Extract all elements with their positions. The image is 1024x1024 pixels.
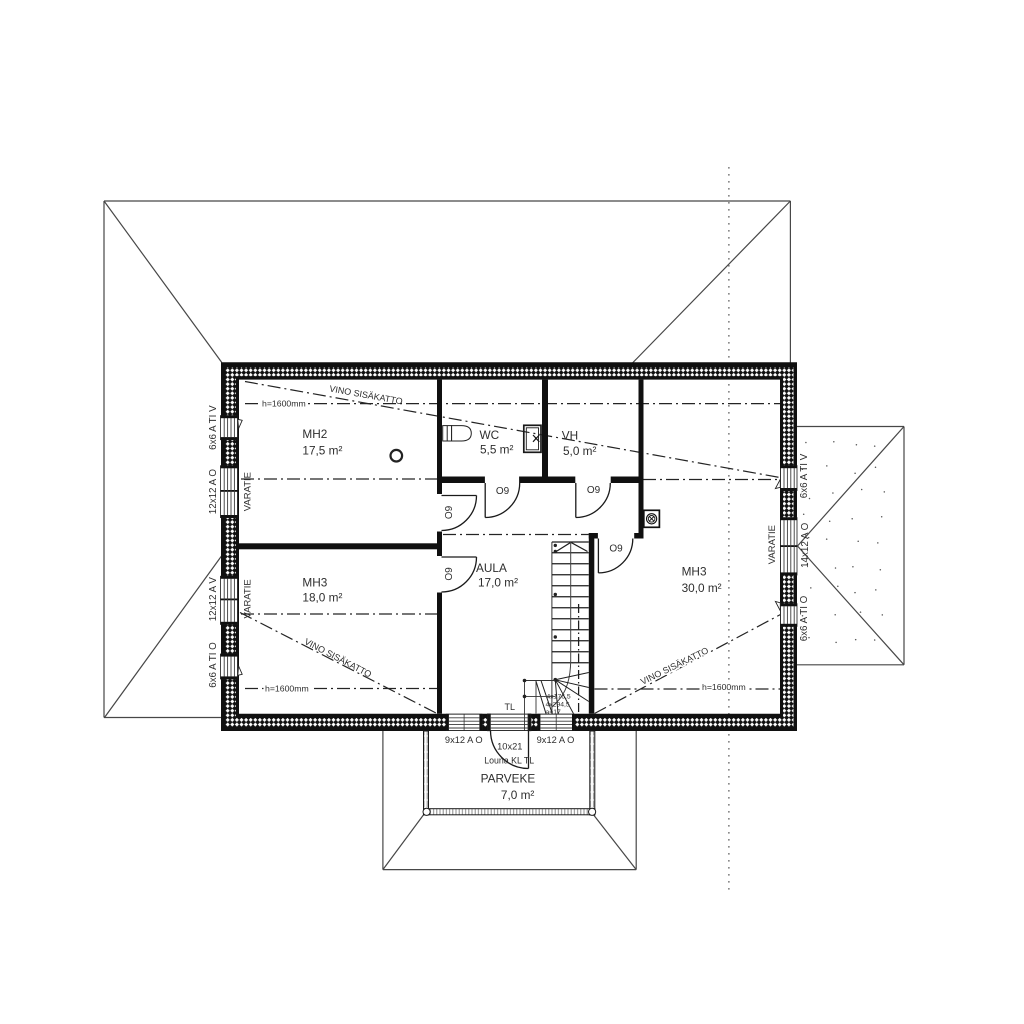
svg-text:9x12 A O: 9x12 A O <box>445 735 483 745</box>
svg-text:18,0 m²: 18,0 m² <box>302 591 342 605</box>
svg-text:10x21: 10x21 <box>497 741 522 751</box>
svg-text:17,0 m²: 17,0 m² <box>478 576 518 590</box>
svg-text:9x12 A O: 9x12 A O <box>537 735 575 745</box>
svg-text:6x6 A TI V: 6x6 A TI V <box>208 405 219 450</box>
svg-text:VARATIE: VARATIE <box>242 579 253 618</box>
svg-text:O9: O9 <box>444 505 455 519</box>
svg-text:WC: WC <box>480 428 500 442</box>
svg-text:Louna KL TL: Louna KL TL <box>484 755 534 765</box>
svg-text:30,0 m²: 30,0 m² <box>682 581 722 595</box>
svg-text:a=17: a=17 <box>546 709 562 716</box>
svg-text:4x294,5: 4x294,5 <box>546 702 570 709</box>
svg-text:O9: O9 <box>587 485 601 496</box>
svg-text:VARATIE: VARATIE <box>242 472 253 511</box>
svg-text:6x6 A TI O: 6x6 A TI O <box>208 642 219 688</box>
svg-text:14x12 A O: 14x12 A O <box>800 522 811 568</box>
svg-text:MH2: MH2 <box>302 427 327 441</box>
svg-text:O9: O9 <box>496 486 510 497</box>
svg-text:TL: TL <box>505 702 516 712</box>
svg-text:5,0 m²: 5,0 m² <box>563 444 597 458</box>
svg-text:4x176,5: 4x176,5 <box>547 694 571 701</box>
svg-text:h=1600mm: h=1600mm <box>262 398 306 408</box>
svg-text:O9: O9 <box>609 543 623 554</box>
svg-text:12x12 A V: 12x12 A V <box>208 577 219 622</box>
svg-text:6x6 A TI O: 6x6 A TI O <box>799 595 810 641</box>
svg-text:7,0 m²: 7,0 m² <box>501 788 535 802</box>
svg-text:h=1600mm: h=1600mm <box>702 682 746 692</box>
svg-text:12x12 A O: 12x12 A O <box>208 469 219 515</box>
svg-text:5,5 m²: 5,5 m² <box>480 443 514 457</box>
svg-text:VARATIE: VARATIE <box>767 525 778 564</box>
svg-text:AULA: AULA <box>476 561 507 575</box>
svg-text:h=1600mm: h=1600mm <box>265 683 309 693</box>
svg-text:PARVEKE: PARVEKE <box>481 771 536 785</box>
svg-text:MH3: MH3 <box>682 564 707 578</box>
svg-text:VH: VH <box>562 428 578 442</box>
svg-text:MH3: MH3 <box>302 575 327 589</box>
svg-text:6x6 A TI V: 6x6 A TI V <box>799 453 810 498</box>
svg-text:17,5 m²: 17,5 m² <box>302 443 342 457</box>
svg-text:O9: O9 <box>444 567 455 581</box>
